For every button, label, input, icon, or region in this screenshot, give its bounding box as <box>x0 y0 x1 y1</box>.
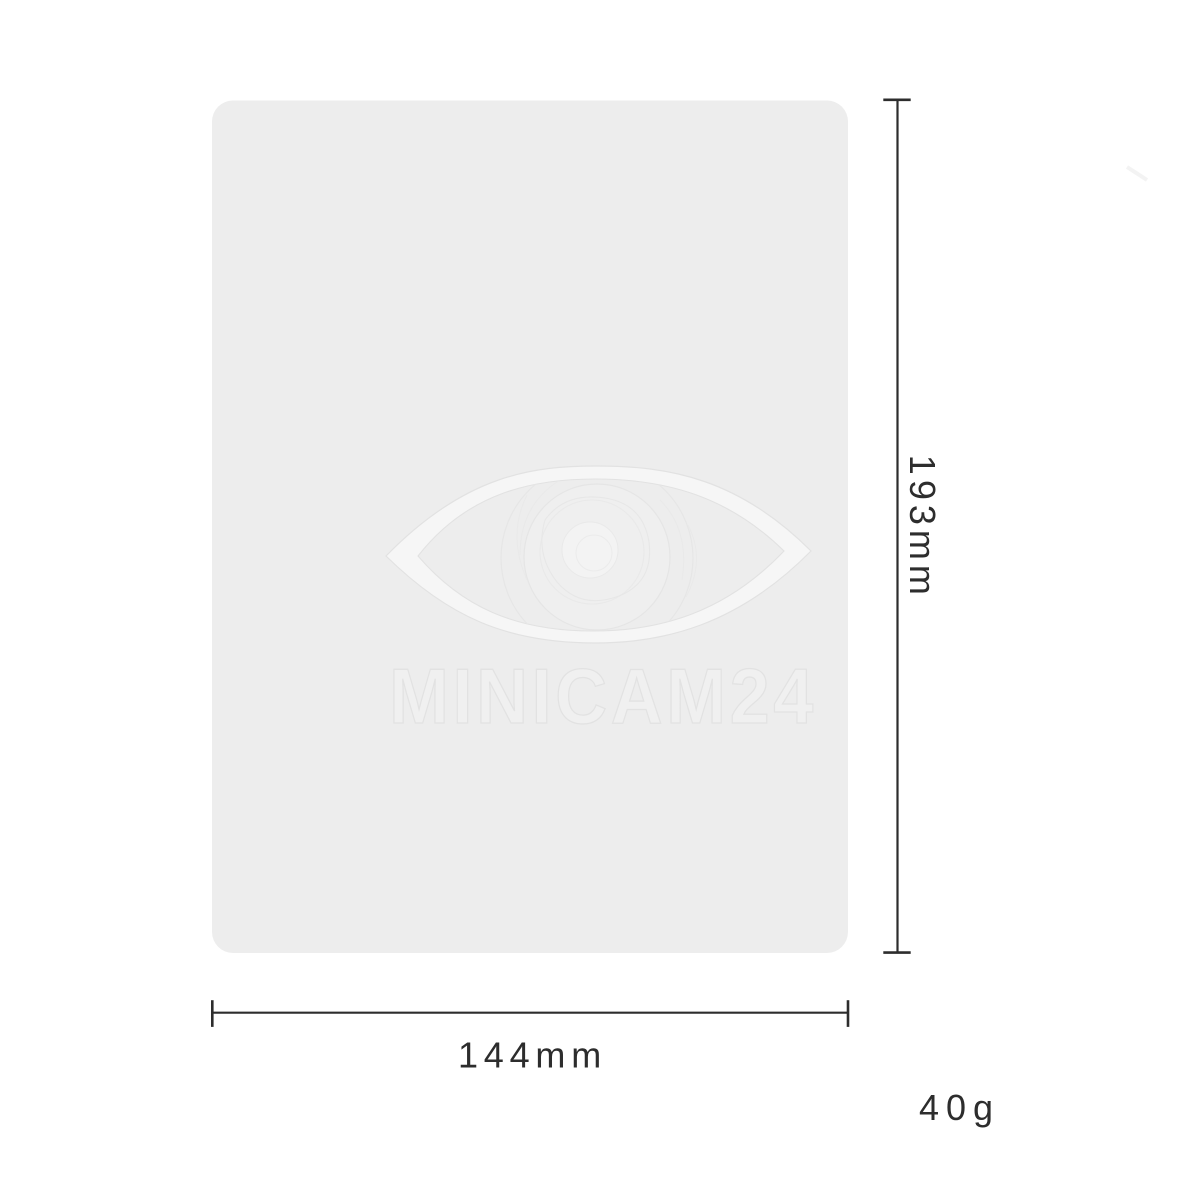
svg-text:40g: 40g <box>919 1087 1000 1128</box>
svg-text:193mm: 193mm <box>902 455 943 600</box>
svg-text:MINICAM24: MINICAM24 <box>389 652 817 739</box>
svg-text:144mm: 144mm <box>458 1035 607 1076</box>
